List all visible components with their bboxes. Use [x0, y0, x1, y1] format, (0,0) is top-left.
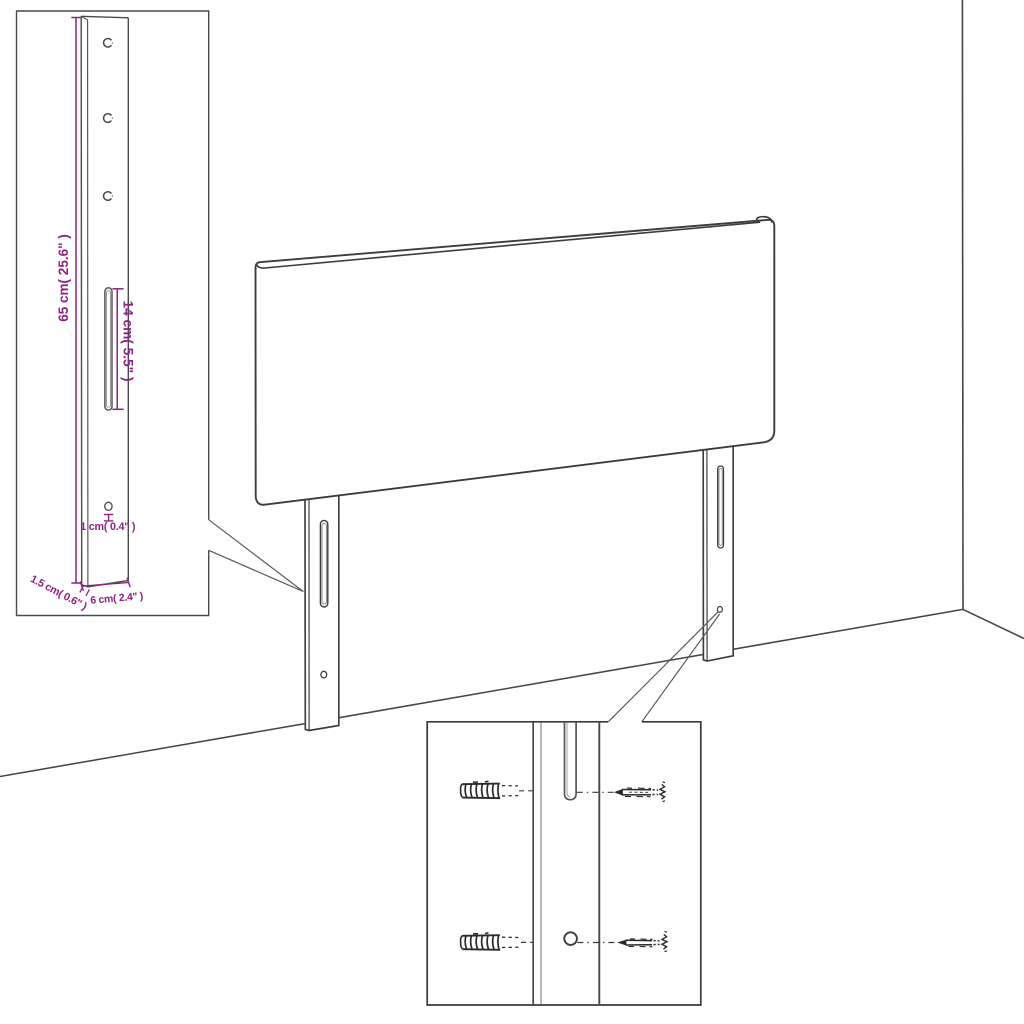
svg-text:14 cm( 5.5" ): 14 cm( 5.5" ): [121, 300, 136, 381]
svg-text:1 cm( 0.4" ): 1 cm( 0.4" ): [80, 521, 136, 533]
svg-text:65 cm( 25.6" ): 65 cm( 25.6" ): [56, 234, 71, 321]
